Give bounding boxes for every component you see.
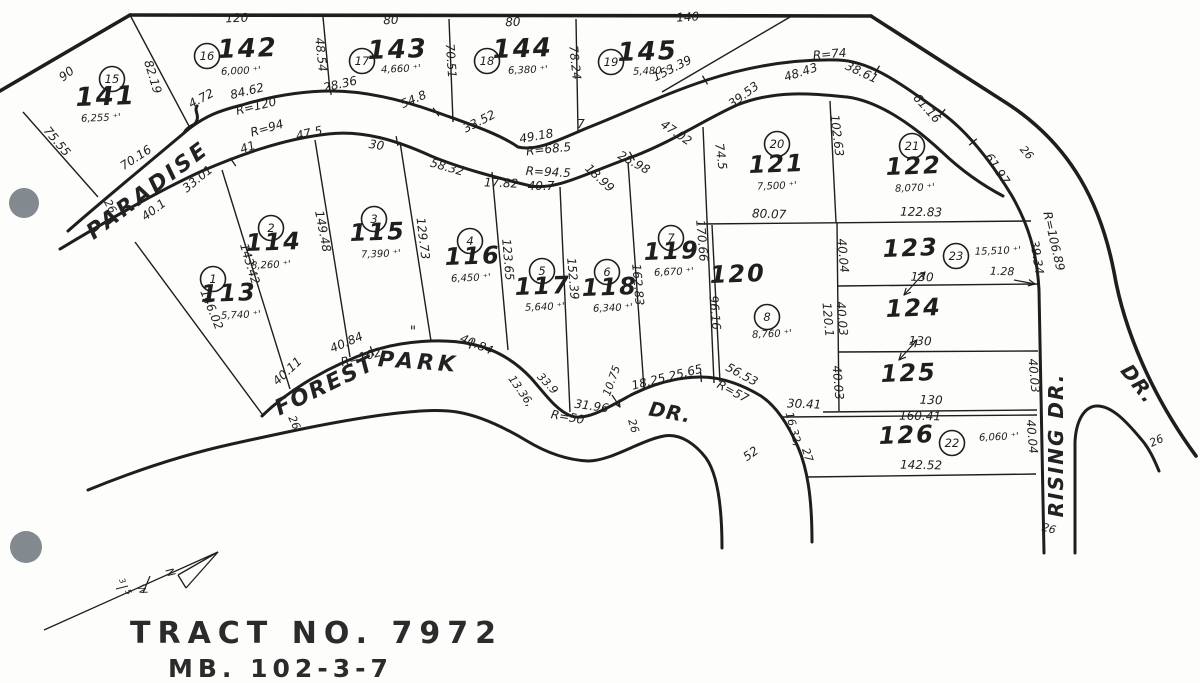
- lot-area-label: 6,000 ⁺': [221, 65, 261, 77]
- dimension-label: 47.5: [295, 123, 324, 143]
- dimension-label: 40.03: [1026, 358, 1043, 393]
- lot-number: 143: [367, 34, 428, 66]
- lot-reference-number: 5: [538, 264, 545, 278]
- dimension-label: 149.48: [312, 209, 334, 253]
- dimension-label: R=94: [249, 117, 285, 140]
- lot-boundary-line: [838, 284, 1039, 286]
- dimension-label: 80: [505, 15, 521, 30]
- lot-boundary-line: [135, 242, 262, 414]
- dimension-label: 40.7: [528, 179, 555, 193]
- dimension-label: 130: [910, 270, 934, 285]
- dimension-label: 142.52: [900, 458, 942, 473]
- street-name-label: DR.: [1116, 359, 1161, 408]
- lot-area-label: 8,760 ⁺': [752, 328, 792, 340]
- dimension-label: ": [410, 324, 416, 340]
- lot-reference-number: 8: [763, 310, 770, 324]
- lot-reference-number: 1: [209, 272, 216, 286]
- dimension-label: 40.04: [835, 238, 852, 273]
- hole-punch: [10, 531, 42, 563]
- lot-area-label: 6,060 ⁺': [979, 431, 1019, 443]
- dimension-label: 48.54: [312, 37, 330, 73]
- dimension-label: 90: [56, 63, 77, 84]
- lot-area-label: 6,340 ⁺': [593, 302, 633, 314]
- dimension-label: 80: [383, 13, 399, 28]
- lot-area-label: 8,260 ⁺': [251, 259, 291, 271]
- lot-reference-number: 22: [945, 436, 960, 450]
- dimension-label: 18.99: [582, 161, 617, 195]
- map-book-reference: MB. 102-3-7: [168, 654, 393, 683]
- street-name-label: DR.: [647, 397, 693, 428]
- dimension-label: 41: [238, 138, 257, 156]
- dimension-label: 39.53: [726, 79, 762, 111]
- dimension-label: R=94.5: [525, 164, 571, 180]
- dimension-label: 4.72: [186, 86, 216, 111]
- dimension-label: 17.82: [484, 175, 519, 190]
- dimension-label: 26.98: [616, 148, 653, 177]
- lot-number: 123: [882, 233, 939, 263]
- dimension-label: 120: [225, 11, 249, 26]
- lot-area-label: 5,480 ⁺': [633, 65, 673, 77]
- lot-area-label: 5,740 ⁺': [221, 309, 261, 321]
- street-edge-line: [1075, 406, 1159, 553]
- lot-reference-number: 15: [105, 72, 120, 86]
- lot-area-label: 4,660 ⁺': [381, 63, 421, 75]
- dimension-label: R=74: [812, 46, 847, 63]
- dimension-label: 96.16: [707, 295, 724, 331]
- north-arrow-bearing-mark: 3: [117, 577, 127, 585]
- lot-area-label: 6,450 ⁺': [451, 272, 491, 284]
- north-arrow-head: [178, 552, 218, 575]
- lot-number: 142: [217, 33, 278, 65]
- lot-area-label: 7,390 ⁺': [361, 248, 401, 260]
- tract-title: TRACT NO. 7972: [130, 616, 503, 651]
- lot-area-label: 6,670 ⁺': [654, 266, 694, 278]
- lot-number: 115: [349, 217, 406, 247]
- dimension-label: 140: [676, 9, 700, 24]
- lot-number: 121: [748, 149, 805, 179]
- north-arrow-fraction-bar: [116, 586, 128, 589]
- dimension-label: 1.28: [990, 265, 1015, 279]
- north-arrow-head: [186, 552, 218, 588]
- dimension-label: 30.41: [787, 396, 822, 411]
- lot-reference-number: 4: [466, 234, 473, 248]
- dimension-label: 40.04: [1024, 419, 1041, 454]
- survey-tick: [396, 136, 398, 146]
- lot-area-label: 5,640 ⁺': [525, 301, 565, 313]
- dimension-label: 26: [1017, 143, 1036, 162]
- dimension-label: 58.32: [429, 156, 466, 179]
- lot-area-label: 15,510 ⁺': [975, 245, 1022, 258]
- lot-area-label: 6,255 ⁺': [81, 112, 121, 124]
- dimension-label: 70.51: [443, 43, 459, 78]
- street-name-label: PARK: [377, 347, 460, 378]
- lot-number: 125: [880, 358, 937, 388]
- dimension-label: 40.03: [830, 365, 847, 400]
- hole-punch: [9, 188, 39, 218]
- lot-number: 120: [709, 259, 766, 289]
- dimension-label: 10.75: [600, 364, 623, 398]
- lot-reference-number: 20: [770, 137, 785, 151]
- dimension-label: 39.34: [1027, 239, 1046, 275]
- dimension-label: 16.32,: [783, 411, 805, 448]
- lot-reference-number: 16: [200, 49, 215, 63]
- dimension-label: 130: [908, 334, 932, 349]
- lot-area-label: 8,070 ⁺': [895, 182, 935, 194]
- lot-reference-number: 6: [603, 265, 610, 279]
- lot-number: 145: [617, 36, 678, 68]
- lot-number: 144: [492, 33, 553, 65]
- lot-reference-number: 3: [370, 212, 377, 226]
- lot-number: 122: [885, 151, 942, 181]
- lot-boundary-line: [838, 351, 1038, 352]
- dimension-label: 78.24: [566, 45, 584, 81]
- dimension-label: 48.43: [782, 60, 819, 84]
- north-arrow-bearing-mark: 5: [123, 588, 133, 596]
- dimension-label: 75.55: [41, 124, 74, 159]
- lot-boundary-line: [808, 474, 1036, 477]
- dimension-label: 82.19: [141, 58, 164, 95]
- dimension-label: 61.97: [982, 151, 1013, 188]
- street-edge-line: [88, 411, 722, 548]
- lot-number: 124: [885, 293, 942, 323]
- dimension-label: 74.5: [712, 142, 730, 170]
- lot-boundary-line: [698, 221, 1031, 224]
- dimension-label: 26: [1147, 432, 1165, 450]
- lot-area-label: 6,380 ⁺': [508, 64, 548, 76]
- dimension-label: 26: [625, 417, 642, 434]
- plat-map-canvas: 12080801409082.1948.5470.5178.24153.3975…: [0, 0, 1200, 675]
- dimension-label: 7: [577, 117, 585, 131]
- north-arrow-bearing-mark: N: [163, 566, 178, 579]
- dimension-label: 70.16: [118, 142, 155, 173]
- dimension-label: 120.1: [820, 302, 837, 337]
- dimension-label: 40.11: [270, 354, 305, 388]
- dimension-label: 130: [919, 393, 943, 408]
- lot-boundary-line: [662, 17, 790, 92]
- street-name-label: RISING DR.: [1044, 373, 1068, 518]
- lot-reference-number: 17: [355, 54, 370, 68]
- dimension-label: 102.63: [827, 114, 846, 157]
- lot-reference-number: 19: [604, 55, 619, 69]
- dimension-label: 18.25,25.65: [630, 362, 704, 393]
- dimension-label: 122.83: [900, 205, 942, 220]
- lot-boundary-line: [130, 15, 190, 128]
- north-arrow-head: [178, 575, 186, 588]
- lot-area-label: 7,500 ⁺': [757, 180, 797, 192]
- lot-reference-number: 21: [905, 139, 920, 153]
- dimension-label: 52: [740, 444, 761, 464]
- lot-reference-number: 18: [480, 54, 495, 68]
- lot-reference-number: 7: [667, 231, 675, 245]
- dimension-label: 30: [368, 137, 385, 153]
- lot-number: 126: [878, 420, 935, 450]
- dimension-label: 33.52: [461, 107, 498, 135]
- dimension-label: 40.84: [458, 331, 495, 357]
- scanned-plat-document: { "title": "TRACT NO. 7972", "subtitle":…: [0, 0, 1200, 675]
- dimension-label: 33.9: [534, 370, 560, 397]
- dimension-label: 61.16: [910, 91, 944, 126]
- lot-reference-number: 23: [949, 249, 964, 263]
- lot-reference-number: 2: [267, 221, 274, 235]
- dimension-label: 129.73: [413, 217, 432, 260]
- dimension-label: 80.07: [752, 206, 787, 221]
